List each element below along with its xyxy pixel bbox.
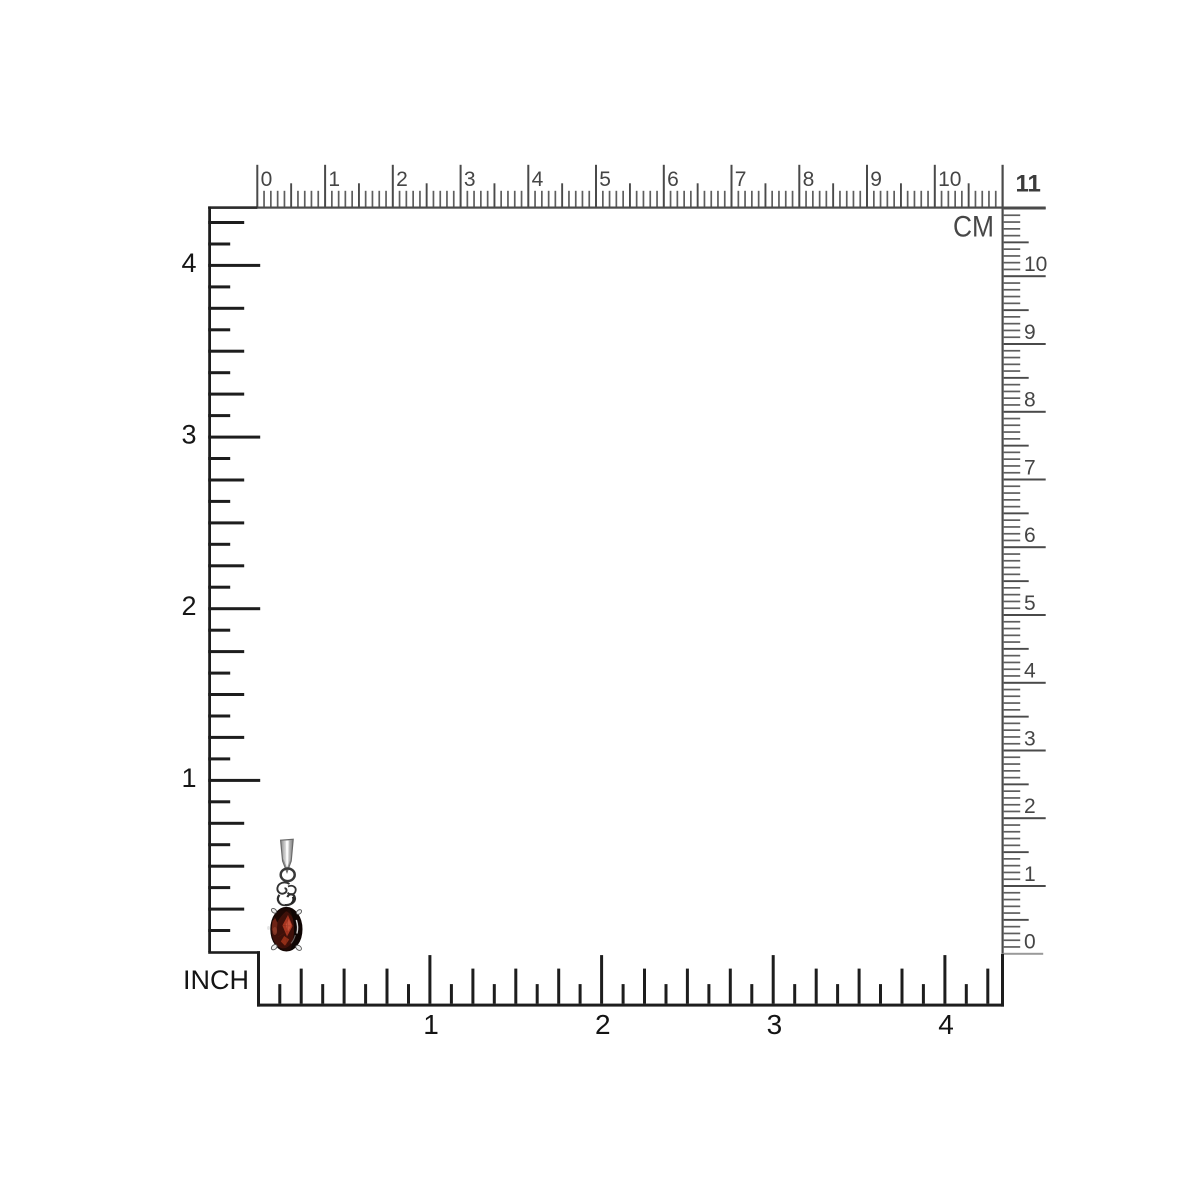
svg-text:1: 1 (423, 1009, 439, 1040)
svg-text:4: 4 (1024, 660, 1036, 683)
svg-text:2: 2 (1024, 795, 1036, 818)
svg-text:7: 7 (735, 168, 747, 191)
svg-text:4: 4 (181, 248, 196, 278)
svg-text:7: 7 (1024, 456, 1036, 479)
svg-text:4: 4 (938, 1009, 954, 1040)
svg-text:6: 6 (667, 168, 679, 191)
svg-text:9: 9 (870, 168, 882, 191)
svg-text:2: 2 (396, 168, 408, 191)
svg-text:0: 0 (1024, 931, 1036, 954)
svg-text:3: 3 (181, 420, 196, 450)
svg-text:4: 4 (532, 168, 544, 191)
svg-text:2: 2 (595, 1009, 611, 1040)
svg-text:2: 2 (181, 591, 196, 621)
svg-text:3: 3 (1024, 727, 1036, 750)
svg-text:INCH: INCH (183, 965, 249, 995)
svg-text:10: 10 (1024, 253, 1047, 276)
svg-text:3: 3 (767, 1009, 783, 1040)
svg-text:1: 1 (181, 763, 196, 793)
svg-text:CM: CM (953, 211, 994, 244)
svg-text:5: 5 (599, 168, 611, 191)
svg-text:10: 10 (938, 168, 961, 191)
svg-text:0: 0 (261, 168, 273, 191)
svg-text:11: 11 (1016, 171, 1041, 198)
svg-text:1: 1 (328, 168, 340, 191)
svg-text:9: 9 (1024, 321, 1036, 344)
svg-text:8: 8 (1024, 389, 1036, 412)
svg-text:6: 6 (1024, 524, 1036, 547)
svg-text:3: 3 (464, 168, 476, 191)
svg-text:5: 5 (1024, 592, 1036, 615)
svg-text:8: 8 (803, 168, 815, 191)
svg-text:1: 1 (1024, 863, 1036, 886)
